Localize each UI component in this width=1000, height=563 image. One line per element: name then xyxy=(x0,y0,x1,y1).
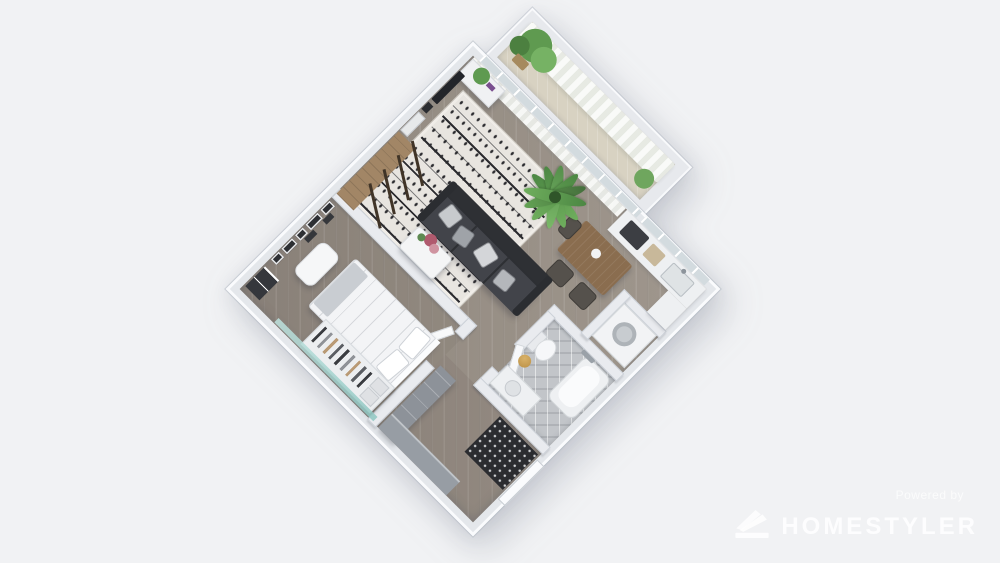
floorplan-rotated xyxy=(226,42,721,537)
powered-by-text: Powered by xyxy=(731,488,964,502)
homestyler-logo-icon xyxy=(731,506,773,547)
render-canvas: Powered by HOMESTYLER xyxy=(0,0,1000,563)
watermark: Powered by HOMESTYLER xyxy=(731,488,978,547)
homestyler-brand-text: HOMESTYLER xyxy=(781,513,978,541)
floorplan-shadow-wrap xyxy=(0,0,1000,563)
